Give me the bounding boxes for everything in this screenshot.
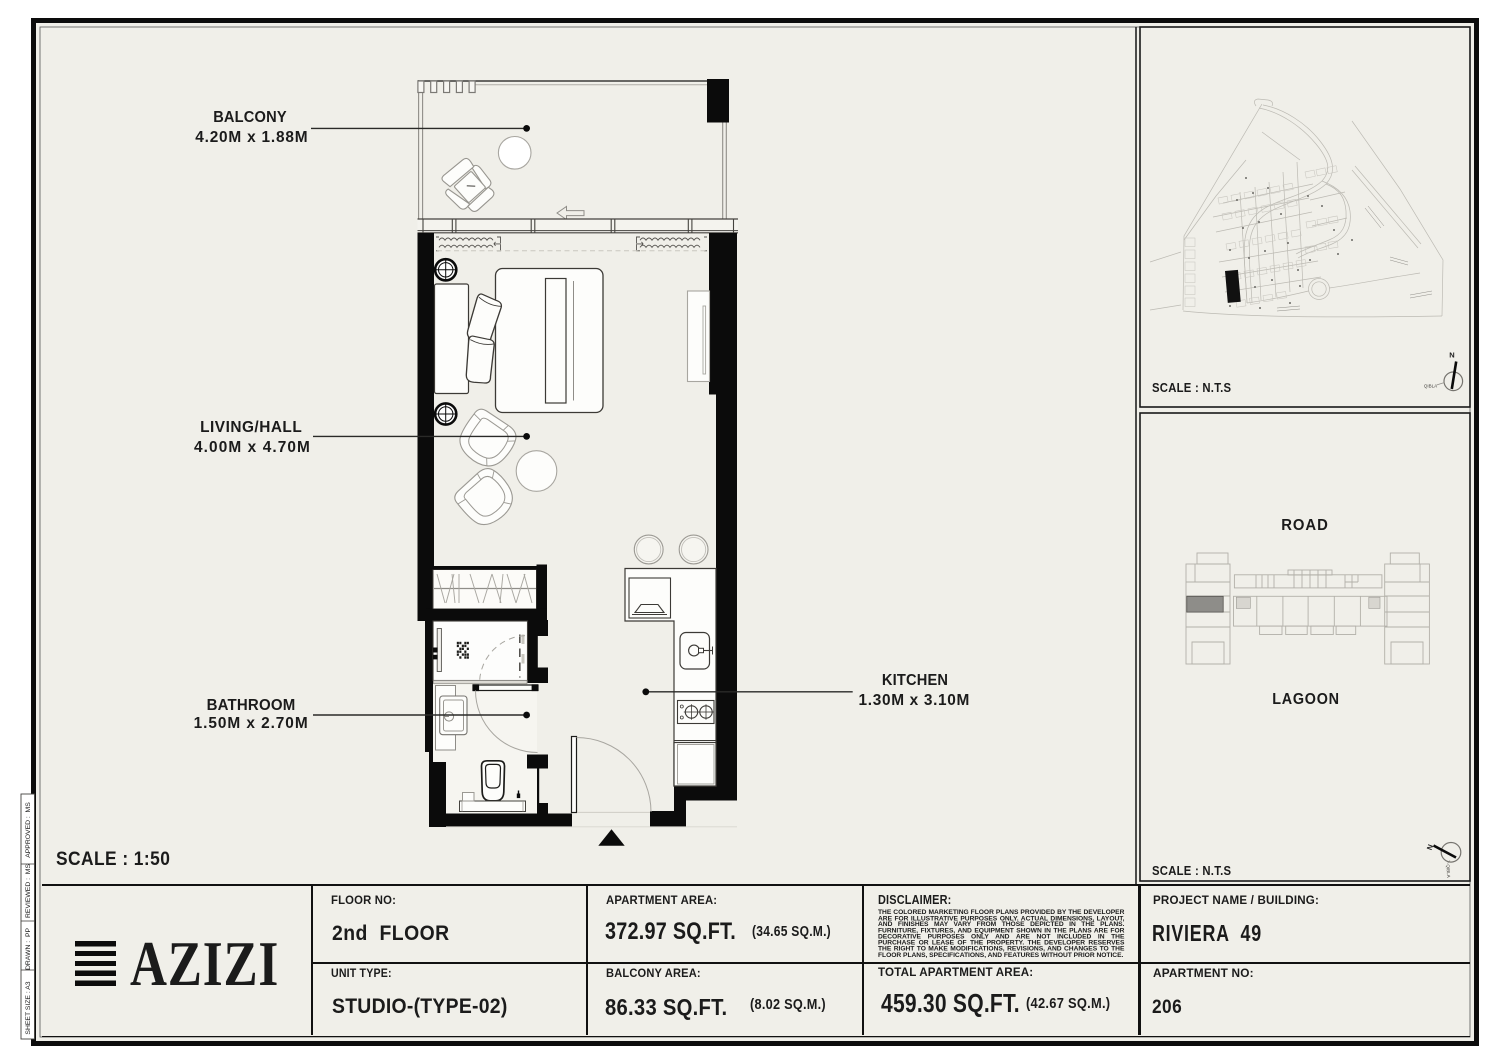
svg-text:REVIEWED : MS: REVIEWED : MS: [25, 864, 32, 918]
svg-text:QIBLA: QIBLA: [1424, 383, 1437, 388]
svg-text:APPROVED : MS: APPROVED : MS: [25, 802, 32, 858]
svg-text:N: N: [1449, 351, 1454, 360]
svg-text:DRAWN : PP: DRAWN : PP: [25, 928, 32, 971]
svg-text:QIBLA: QIBLA: [1446, 864, 1452, 878]
svg-text:SHEET SIZE : A3: SHEET SIZE : A3: [25, 981, 32, 1034]
